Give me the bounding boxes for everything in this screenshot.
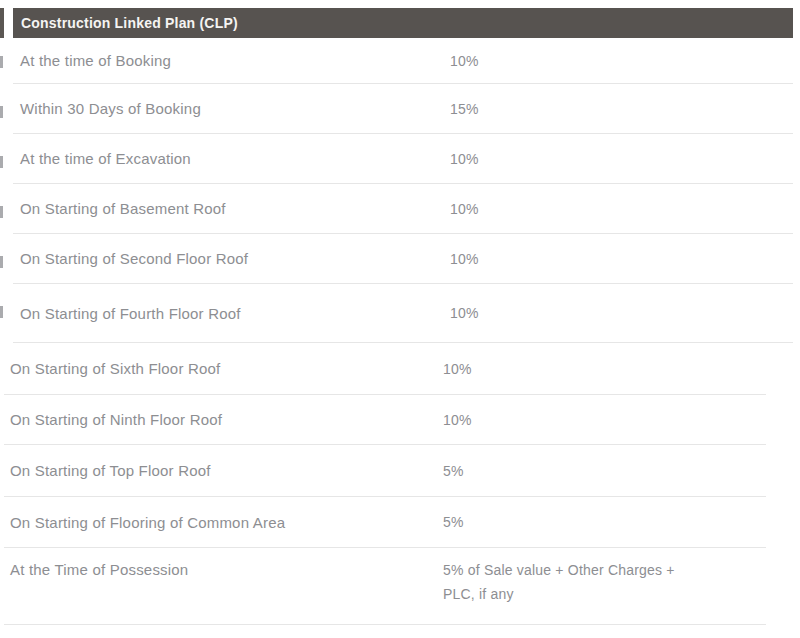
milestone-label: At the Time of Possession [4,558,443,582]
clipped-text-fragment [0,56,3,68]
table-row: Within 30 Days of Booking 15% [13,84,793,134]
milestone-label: On Starting of Ninth Floor Roof [4,411,443,428]
clipped-text-fragment [0,256,3,268]
table-title-bar: Construction Linked Plan (CLP) [13,8,793,38]
table-row: On Starting of Second Floor Roof 10% [13,234,793,284]
table-row: On Starting of Basement Roof 10% [13,184,793,234]
milestone-label: At the time of Booking [13,52,450,69]
milestone-label: On Starting of Fourth Floor Roof [13,305,450,322]
clipped-text-fragment [0,206,3,218]
milestone-label: On Starting of Top Floor Roof [4,462,443,479]
clipped-text-fragment [0,306,3,318]
milestone-value: 5% [443,463,464,479]
milestone-value: 10% [443,361,472,377]
milestone-value: 15% [450,101,479,117]
clipped-header-fragment [0,8,4,38]
table-row: On Starting of Fourth Floor Roof 10% [13,284,793,343]
milestone-label: On Starting of Sixth Floor Roof [4,360,443,377]
table-row: On Starting of Ninth Floor Roof 10% [4,395,766,445]
table-row: At the time of Booking 10% [13,38,793,84]
milestone-label: At the time of Excavation [13,150,450,167]
table-row: At the Time of Possession 5% of Sale val… [4,548,766,625]
clipped-text-fragment [0,156,3,168]
table-row: On Starting of Top Floor Roof 5% [4,445,766,497]
payment-plan-table-upper: Construction Linked Plan (CLP) At the ti… [13,8,793,343]
milestone-label: On Starting of Second Floor Roof [13,250,450,267]
milestone-value: 10% [450,305,479,321]
milestone-value: 5% [443,514,464,530]
milestone-label: On Starting of Flooring of Common Area [4,514,443,531]
milestone-value: 10% [450,251,479,267]
clipped-text-fragment [0,106,3,118]
table-row: On Starting of Flooring of Common Area 5… [4,497,766,548]
payment-plan-page: Construction Linked Plan (CLP) At the ti… [0,0,800,638]
table-title: Construction Linked Plan (CLP) [21,15,238,31]
payment-plan-table-lower: On Starting of Sixth Floor Roof 10% On S… [4,343,766,625]
milestone-value: 10% [450,53,479,69]
table-row: On Starting of Sixth Floor Roof 10% [4,343,766,395]
milestone-label: On Starting of Basement Roof [13,200,450,217]
milestone-value: 10% [450,201,479,217]
table-row: At the time of Excavation 10% [13,134,793,184]
milestone-value: 10% [443,412,472,428]
milestone-value: 10% [450,151,479,167]
milestone-value: 5% of Sale value + Other Charges + PLC, … [443,558,675,606]
milestone-label: Within 30 Days of Booking [13,100,450,117]
